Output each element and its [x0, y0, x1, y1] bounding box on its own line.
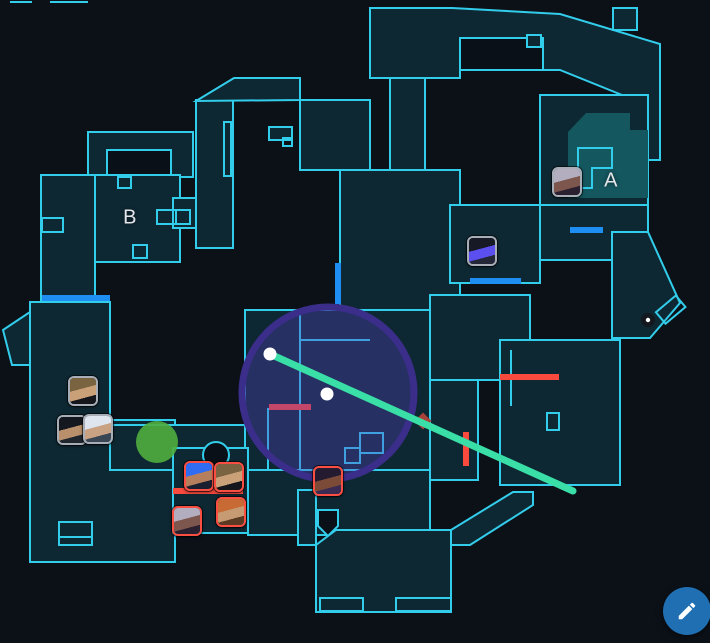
agent-token-astra[interactable]: [313, 466, 343, 496]
agent-portrait-reyna: [554, 169, 580, 195]
agent-token-reyna[interactable]: [172, 506, 202, 536]
pencil-icon: [676, 600, 698, 622]
strategy-board[interactable]: AB: [0, 0, 710, 643]
agent-token-reyna[interactable]: [552, 167, 582, 197]
agent-portrait-jett: [85, 416, 111, 442]
agent-portrait-breach: [218, 499, 244, 525]
agent-portrait-chamber: [216, 464, 242, 490]
waypoint-dot[interactable]: [321, 388, 334, 401]
site-label-b: B: [123, 207, 137, 230]
dot-marker[interactable]: [641, 313, 655, 327]
waypoint-dot[interactable]: [264, 348, 277, 361]
map-geometry: [0, 0, 710, 643]
agent-portrait-omen: [469, 238, 495, 264]
agent-token-breach[interactable]: [216, 497, 246, 527]
agent-token-omen[interactable]: [467, 236, 497, 266]
agent-portrait-viper: [59, 417, 85, 443]
agent-token-chamber[interactable]: [68, 376, 98, 406]
agent-token-neon[interactable]: [184, 461, 214, 491]
agent-token-chamber[interactable]: [214, 462, 244, 492]
site-label-a: A: [604, 170, 618, 193]
agent-portrait-reyna: [174, 508, 200, 534]
edit-button[interactable]: [663, 587, 710, 635]
agent-portrait-astra: [315, 468, 341, 494]
agent-portrait-neon: [186, 463, 212, 489]
smoke-marker[interactable]: [136, 421, 178, 463]
agent-token-jett[interactable]: [83, 414, 113, 444]
agent-portrait-chamber: [70, 378, 96, 404]
